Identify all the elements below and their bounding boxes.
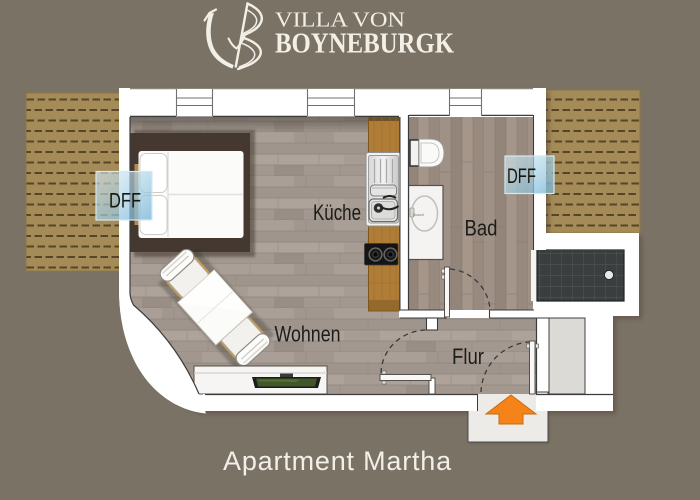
svg-text:Küche: Küche	[313, 200, 361, 225]
svg-text:Apartment Martha: Apartment Martha	[223, 446, 452, 476]
svg-text:Flur: Flur	[452, 344, 484, 369]
svg-text:Bad: Bad	[465, 216, 498, 241]
svg-text:Wohnen: Wohnen	[275, 322, 341, 347]
svg-text:BOYNEBURGK: BOYNEBURGK	[275, 28, 454, 60]
svg-text:DFF: DFF	[507, 165, 536, 188]
svg-text:Bosch: Bosch	[413, 212, 424, 217]
svg-text:DFF: DFF	[109, 190, 141, 213]
